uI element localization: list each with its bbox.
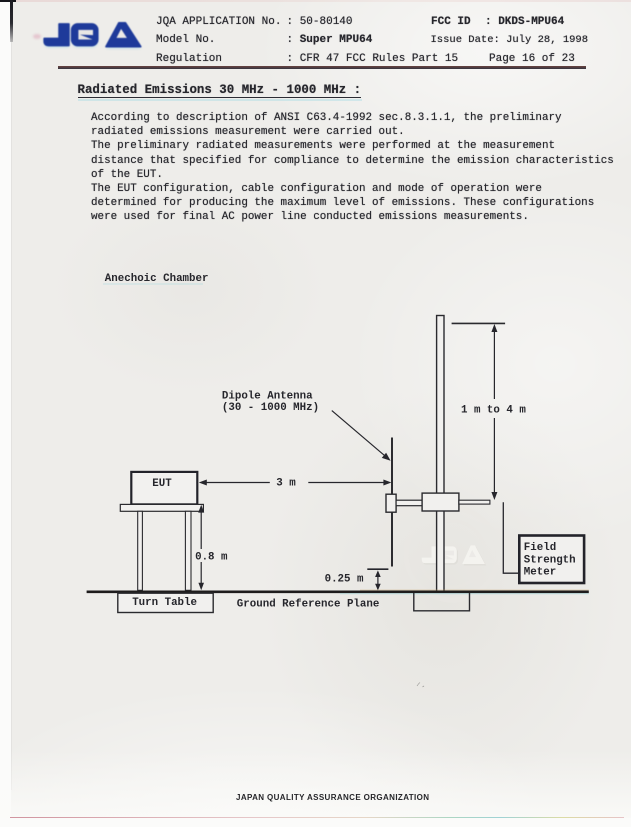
svg-text:Turn Table: Turn Table [132, 597, 197, 609]
svg-text:Ground Reference Plane: Ground Reference Plane [237, 598, 380, 610]
svg-text:0.8 m: 0.8 m [195, 551, 228, 563]
svg-text:0.25 m: 0.25 m [325, 574, 364, 586]
svg-text:Anechoic Chamber: Anechoic Chamber [105, 273, 209, 285]
svg-text:EUT: EUT [152, 478, 172, 490]
svg-text:Dipole Antenna: Dipole Antenna [222, 390, 313, 402]
svg-text:Strength: Strength [524, 554, 576, 566]
svg-text:3 m: 3 m [276, 478, 296, 490]
svg-text:(30 - 1000 MHz): (30 - 1000 MHz) [222, 402, 319, 414]
svg-text:Meter: Meter [524, 566, 556, 578]
svg-text:Field: Field [524, 542, 556, 554]
svg-text:1 m to 4 m: 1 m to 4 m [461, 405, 526, 417]
